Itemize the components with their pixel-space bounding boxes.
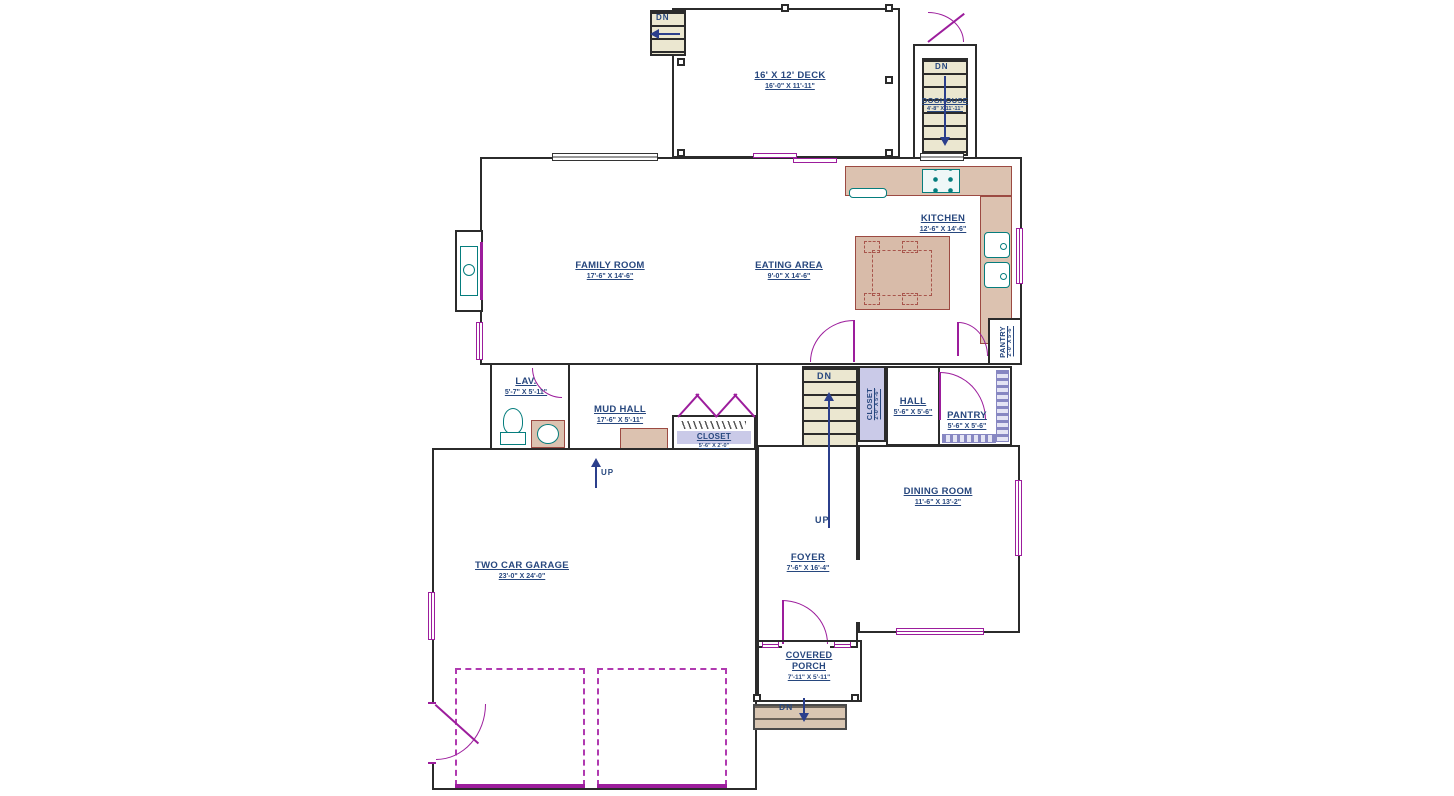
mud-closet-dims: 5'-6" X 2'-0" <box>677 443 751 450</box>
porch-post <box>851 694 859 702</box>
deck-post <box>885 4 893 12</box>
pantry-upper-label: PANTRY 2'-0" X 5'-6" <box>988 318 1022 365</box>
dining-bottom-window <box>896 628 984 635</box>
stair-hall-door-leaf <box>853 320 855 362</box>
deck-name: 16' X 12' DECK <box>725 70 855 82</box>
basin-drain <box>1000 273 1007 280</box>
garage-door <box>597 784 727 788</box>
stair-closet-dims: 2'-0" X 5'-6" <box>874 389 880 419</box>
porch-arrow <box>803 698 805 718</box>
dining-room-name: DINING ROOM <box>888 486 988 498</box>
pantry-shelves-right <box>996 370 1009 442</box>
deck-post <box>781 4 789 12</box>
doghouse-dn-label: DN <box>935 62 949 71</box>
family-room-label: FAMILY ROOM 17'-6" X 14'-6" <box>565 260 655 282</box>
mud-stairs-up-label: UP <box>601 468 614 477</box>
hall-label: HALL 5'-6" X 5'-6" <box>888 396 938 418</box>
front-door-leaf <box>782 600 784 644</box>
porch-dims: 7'-11" X 5'-11" <box>768 674 850 682</box>
toilet-bowl <box>503 408 523 434</box>
porch-post <box>753 694 761 702</box>
mud-hall-dims: 17'-6" X 5'-11" <box>585 417 655 426</box>
eating-area-dims: 9'-0" X 14'-6" <box>744 273 834 282</box>
family-room-window <box>552 153 658 161</box>
mud-stairs-arrow <box>595 462 597 488</box>
deck-post <box>885 149 893 157</box>
foyer-label: FOYER 7'-6" X 16'-4" <box>776 552 840 574</box>
hall-name: HALL <box>888 396 938 408</box>
pantry-lower-dims: 5'-6" X 5'-6" <box>938 423 996 432</box>
dining-room-dims: 11'-6" X 13'-2" <box>888 499 988 508</box>
dining-right-window <box>1015 480 1022 556</box>
kitchen-sink <box>849 188 887 198</box>
mud-hall-bench <box>620 428 668 450</box>
closet-rod-ticks <box>680 421 746 429</box>
kitchen-dims: 12'-6" X 14'-6" <box>898 226 988 235</box>
eating-area-name: EATING AREA <box>744 260 834 272</box>
foyer-dims: 7'-6" X 16'-4" <box>776 565 840 574</box>
porch-dn-label: DN <box>779 702 793 712</box>
porch-label: COVERED PORCH 7'-11" X 5'-11" <box>768 650 850 682</box>
family-room-dims: 17'-6" X 14'-6" <box>565 273 655 282</box>
floor-plan: 16' X 12' DECK 16'-0" X 11'-11" DN DN DO… <box>0 0 1454 796</box>
kitchen-right-window <box>1016 228 1023 284</box>
main-stairs-up-label: UP <box>815 515 830 525</box>
fireplace-hearth <box>480 242 483 300</box>
mud-closet-label: CLOSET 5'-6" X 2'-0" <box>677 432 751 450</box>
right-sink-basin <box>984 232 1010 258</box>
garage-name: TWO CAR GARAGE <box>462 560 582 572</box>
garage-door <box>455 784 585 788</box>
cooktop <box>922 169 960 193</box>
pantry-shelves-bottom <box>942 434 996 443</box>
pantry-upper-dims: 2'-0" X 5'-6" <box>1007 326 1013 356</box>
foyer-dining-opening <box>854 560 862 622</box>
stair-closet-label: CLOSET 2'-0" X 5'-6" <box>858 366 886 442</box>
porch-name: COVERED PORCH <box>768 650 850 673</box>
kitchen-name: KITCHEN <box>898 213 988 225</box>
toilet-tank <box>500 432 526 445</box>
mud-hall-label: MUD HALL 17'-6" X 5'-11" <box>585 404 655 426</box>
chair <box>902 241 918 253</box>
main-stairs-arrow <box>828 396 830 528</box>
mud-hall-name: MUD HALL <box>585 404 655 416</box>
eating-area-label: EATING AREA 9'-0" X 14'-6" <box>744 260 834 282</box>
pantry-upper-name: PANTRY <box>998 326 1007 358</box>
mud-closet-name: CLOSET <box>677 432 751 442</box>
hall-dims: 5'-6" X 5'-6" <box>888 409 938 418</box>
right-sink-basin <box>984 262 1010 288</box>
deck-sliding-door <box>753 153 797 158</box>
doghouse-arrow <box>944 76 946 142</box>
dining-room <box>858 445 1020 633</box>
kitchen-label: KITCHEN 12'-6" X 14'-6" <box>898 213 988 235</box>
deck-post <box>677 58 685 66</box>
eating-table-top <box>872 250 932 296</box>
lav-label: LAV. 5'-7" X 5'-11" <box>500 376 552 398</box>
deck-landing-arrow <box>654 33 680 35</box>
parking-stall <box>597 668 727 786</box>
garage-label: TWO CAR GARAGE 23'-0" X 24'-0" <box>462 560 582 582</box>
basin-drain <box>1000 243 1007 250</box>
chair <box>864 293 880 305</box>
pantry-lower-name: PANTRY <box>938 410 996 422</box>
lav-sink <box>537 424 559 444</box>
fireplace-flue <box>463 264 475 276</box>
deck-post <box>885 76 893 84</box>
garage-side-door-opening <box>428 702 436 764</box>
chair <box>864 241 880 253</box>
garage-dims: 23'-0" X 24'-0" <box>462 573 582 582</box>
chair <box>902 293 918 305</box>
lav-dims: 5'-7" X 5'-11" <box>500 389 552 398</box>
deck-post <box>677 149 685 157</box>
deck-dims: 16'-0" X 11'-11" <box>725 83 855 92</box>
garage-left-window <box>428 592 435 640</box>
kitchen-window <box>920 153 964 161</box>
stair-closet-name: CLOSET <box>865 388 874 420</box>
pantry-upper-door-leaf <box>957 322 959 356</box>
deck-landing-dn-label: DN <box>656 13 670 22</box>
family-room-name: FAMILY ROOM <box>565 260 655 272</box>
family-room-left-window <box>476 322 483 360</box>
pantry-lower-label: PANTRY 5'-6" X 5'-6" <box>938 410 996 432</box>
deck-label: 16' X 12' DECK 16'-0" X 11'-11" <box>725 70 855 92</box>
main-stairs-dn-label: DN <box>817 371 832 381</box>
lav-name: LAV. <box>500 376 552 388</box>
foyer-name: FOYER <box>776 552 840 564</box>
deck-sliding-door <box>793 158 837 163</box>
dining-room-label: DINING ROOM 11'-6" X 13'-2" <box>888 486 988 508</box>
